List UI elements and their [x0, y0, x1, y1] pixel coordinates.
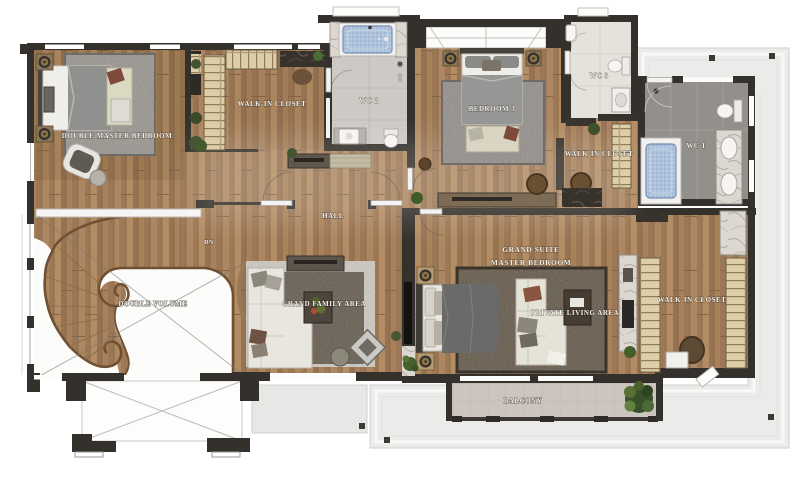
svg-text:WC 3: WC 3 [589, 72, 608, 80]
svg-text:BALCONY: BALCONY [504, 397, 543, 405]
svg-text:DN: DN [204, 240, 214, 246]
svg-text:WC 2: WC 2 [359, 97, 378, 105]
svg-text:GRAND SUITE: GRAND SUITE [502, 245, 559, 254]
svg-text:DOUBLE MASTER BEDROOM: DOUBLE MASTER BEDROOM [62, 132, 172, 140]
svg-text:BEDROOM 3: BEDROOM 3 [469, 105, 516, 113]
svg-text:WC 1: WC 1 [686, 142, 705, 150]
svg-text:MASTER BEDROOM: MASTER BEDROOM [491, 258, 572, 267]
svg-text:HALL: HALL [322, 212, 344, 220]
svg-text:WALK-IN CLOSET: WALK-IN CLOSET [658, 296, 727, 304]
svg-text:WALK-IN CLOSET: WALK-IN CLOSET [238, 100, 307, 108]
svg-text:GRAND FAMILY AREA: GRAND FAMILY AREA [282, 300, 366, 308]
svg-text:PRIVATE LIVING AREA: PRIVATE LIVING AREA [531, 309, 619, 317]
svg-text:WALK-IN CLOSET: WALK-IN CLOSET [565, 150, 634, 158]
svg-text:DOUBLE VOLUME: DOUBLE VOLUME [118, 300, 187, 308]
